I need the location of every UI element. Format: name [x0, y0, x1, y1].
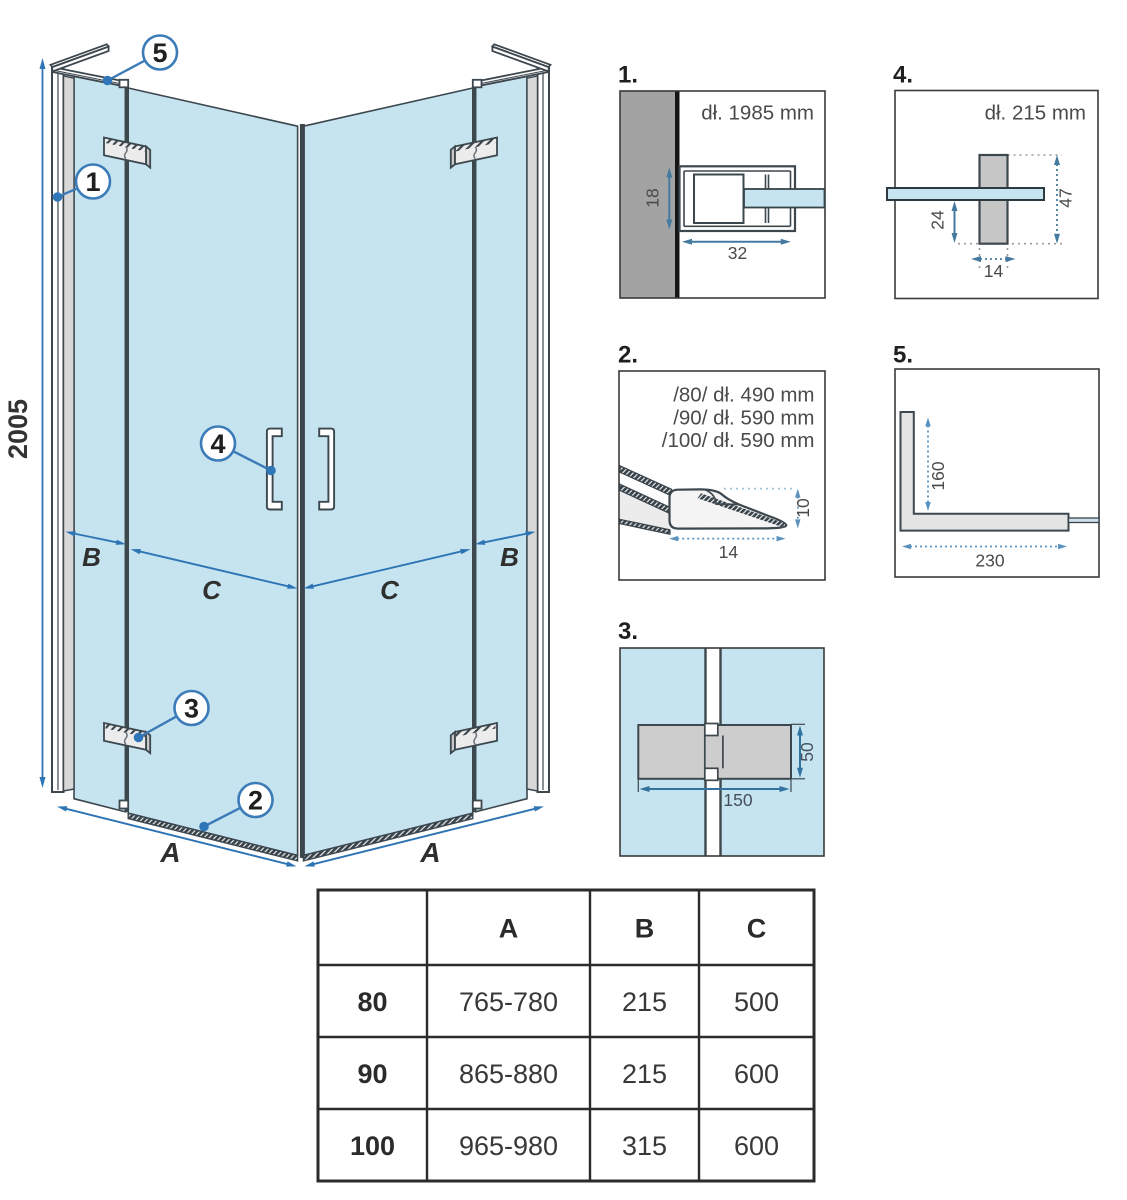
svg-text:1: 1	[85, 167, 100, 197]
svg-text:B: B	[82, 542, 101, 572]
svg-text:80: 80	[357, 987, 387, 1017]
svg-text:90: 90	[357, 1059, 387, 1089]
svg-text:B: B	[500, 542, 519, 572]
svg-text:1.: 1.	[618, 62, 638, 89]
svg-text:100: 100	[350, 1131, 395, 1161]
svg-text:965-980: 965-980	[459, 1131, 558, 1161]
svg-text:A: A	[159, 837, 180, 868]
svg-text:/100/ dł. 590 mm: /100/ dł. 590 mm	[662, 429, 815, 452]
svg-text:10: 10	[793, 498, 813, 518]
svg-text:5: 5	[152, 38, 167, 68]
svg-text:2.: 2.	[618, 342, 638, 369]
svg-text:3.: 3.	[618, 618, 638, 645]
svg-text:47: 47	[1056, 188, 1076, 207]
svg-text:215: 215	[622, 987, 667, 1017]
svg-text:4.: 4.	[893, 62, 913, 89]
svg-text:865-880: 865-880	[459, 1059, 558, 1089]
svg-text:18: 18	[643, 188, 663, 207]
svg-text:2: 2	[248, 786, 263, 816]
svg-text:dł. 215 mm: dł. 215 mm	[985, 102, 1086, 125]
svg-text:3: 3	[184, 694, 199, 724]
svg-text:C: C	[202, 575, 222, 605]
svg-text:230: 230	[975, 551, 1004, 571]
svg-text:A: A	[499, 914, 519, 944]
svg-text:150: 150	[723, 790, 752, 810]
svg-text:315: 315	[622, 1131, 667, 1161]
svg-text:14: 14	[984, 261, 1004, 281]
svg-text:600: 600	[734, 1131, 779, 1161]
svg-text:500: 500	[734, 987, 779, 1017]
svg-text:B: B	[635, 914, 655, 944]
svg-text:dł. 1985 mm: dł. 1985 mm	[701, 102, 814, 125]
svg-text:24: 24	[928, 210, 948, 230]
svg-text:32: 32	[728, 243, 747, 263]
svg-text:765-780: 765-780	[459, 987, 558, 1017]
svg-text:50: 50	[797, 742, 817, 762]
svg-text:600: 600	[734, 1059, 779, 1089]
svg-text:2005: 2005	[3, 399, 33, 459]
svg-text:C: C	[747, 914, 767, 944]
svg-text:14: 14	[719, 542, 739, 562]
svg-text:C: C	[380, 575, 400, 605]
svg-text:A: A	[419, 837, 440, 868]
svg-text:/90/ dł. 590 mm: /90/ dł. 590 mm	[673, 407, 814, 430]
svg-text:215: 215	[622, 1059, 667, 1089]
svg-text:/80/ dł. 490 mm: /80/ dł. 490 mm	[673, 383, 814, 406]
svg-text:5.: 5.	[893, 342, 913, 369]
svg-text:4: 4	[210, 429, 225, 459]
svg-text:160: 160	[928, 461, 948, 490]
